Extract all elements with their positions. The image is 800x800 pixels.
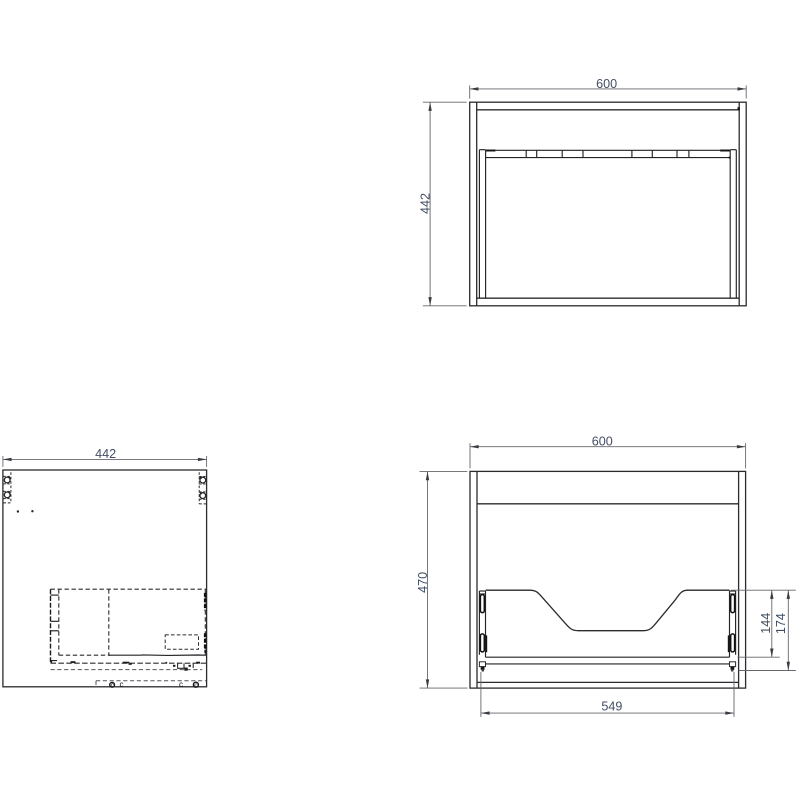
svg-text:c: c <box>194 682 198 689</box>
svg-text:442: 442 <box>419 193 433 214</box>
svg-text:174: 174 <box>774 613 788 634</box>
svg-text:442: 442 <box>95 447 116 461</box>
svg-text:c: c <box>179 680 183 689</box>
svg-text:600: 600 <box>596 77 617 91</box>
svg-text:549: 549 <box>601 699 622 713</box>
svg-text:470: 470 <box>416 572 430 593</box>
svg-text:144: 144 <box>759 613 773 634</box>
svg-text:c: c <box>110 682 114 689</box>
svg-text:c: c <box>120 680 124 689</box>
svg-text:600: 600 <box>592 434 613 448</box>
